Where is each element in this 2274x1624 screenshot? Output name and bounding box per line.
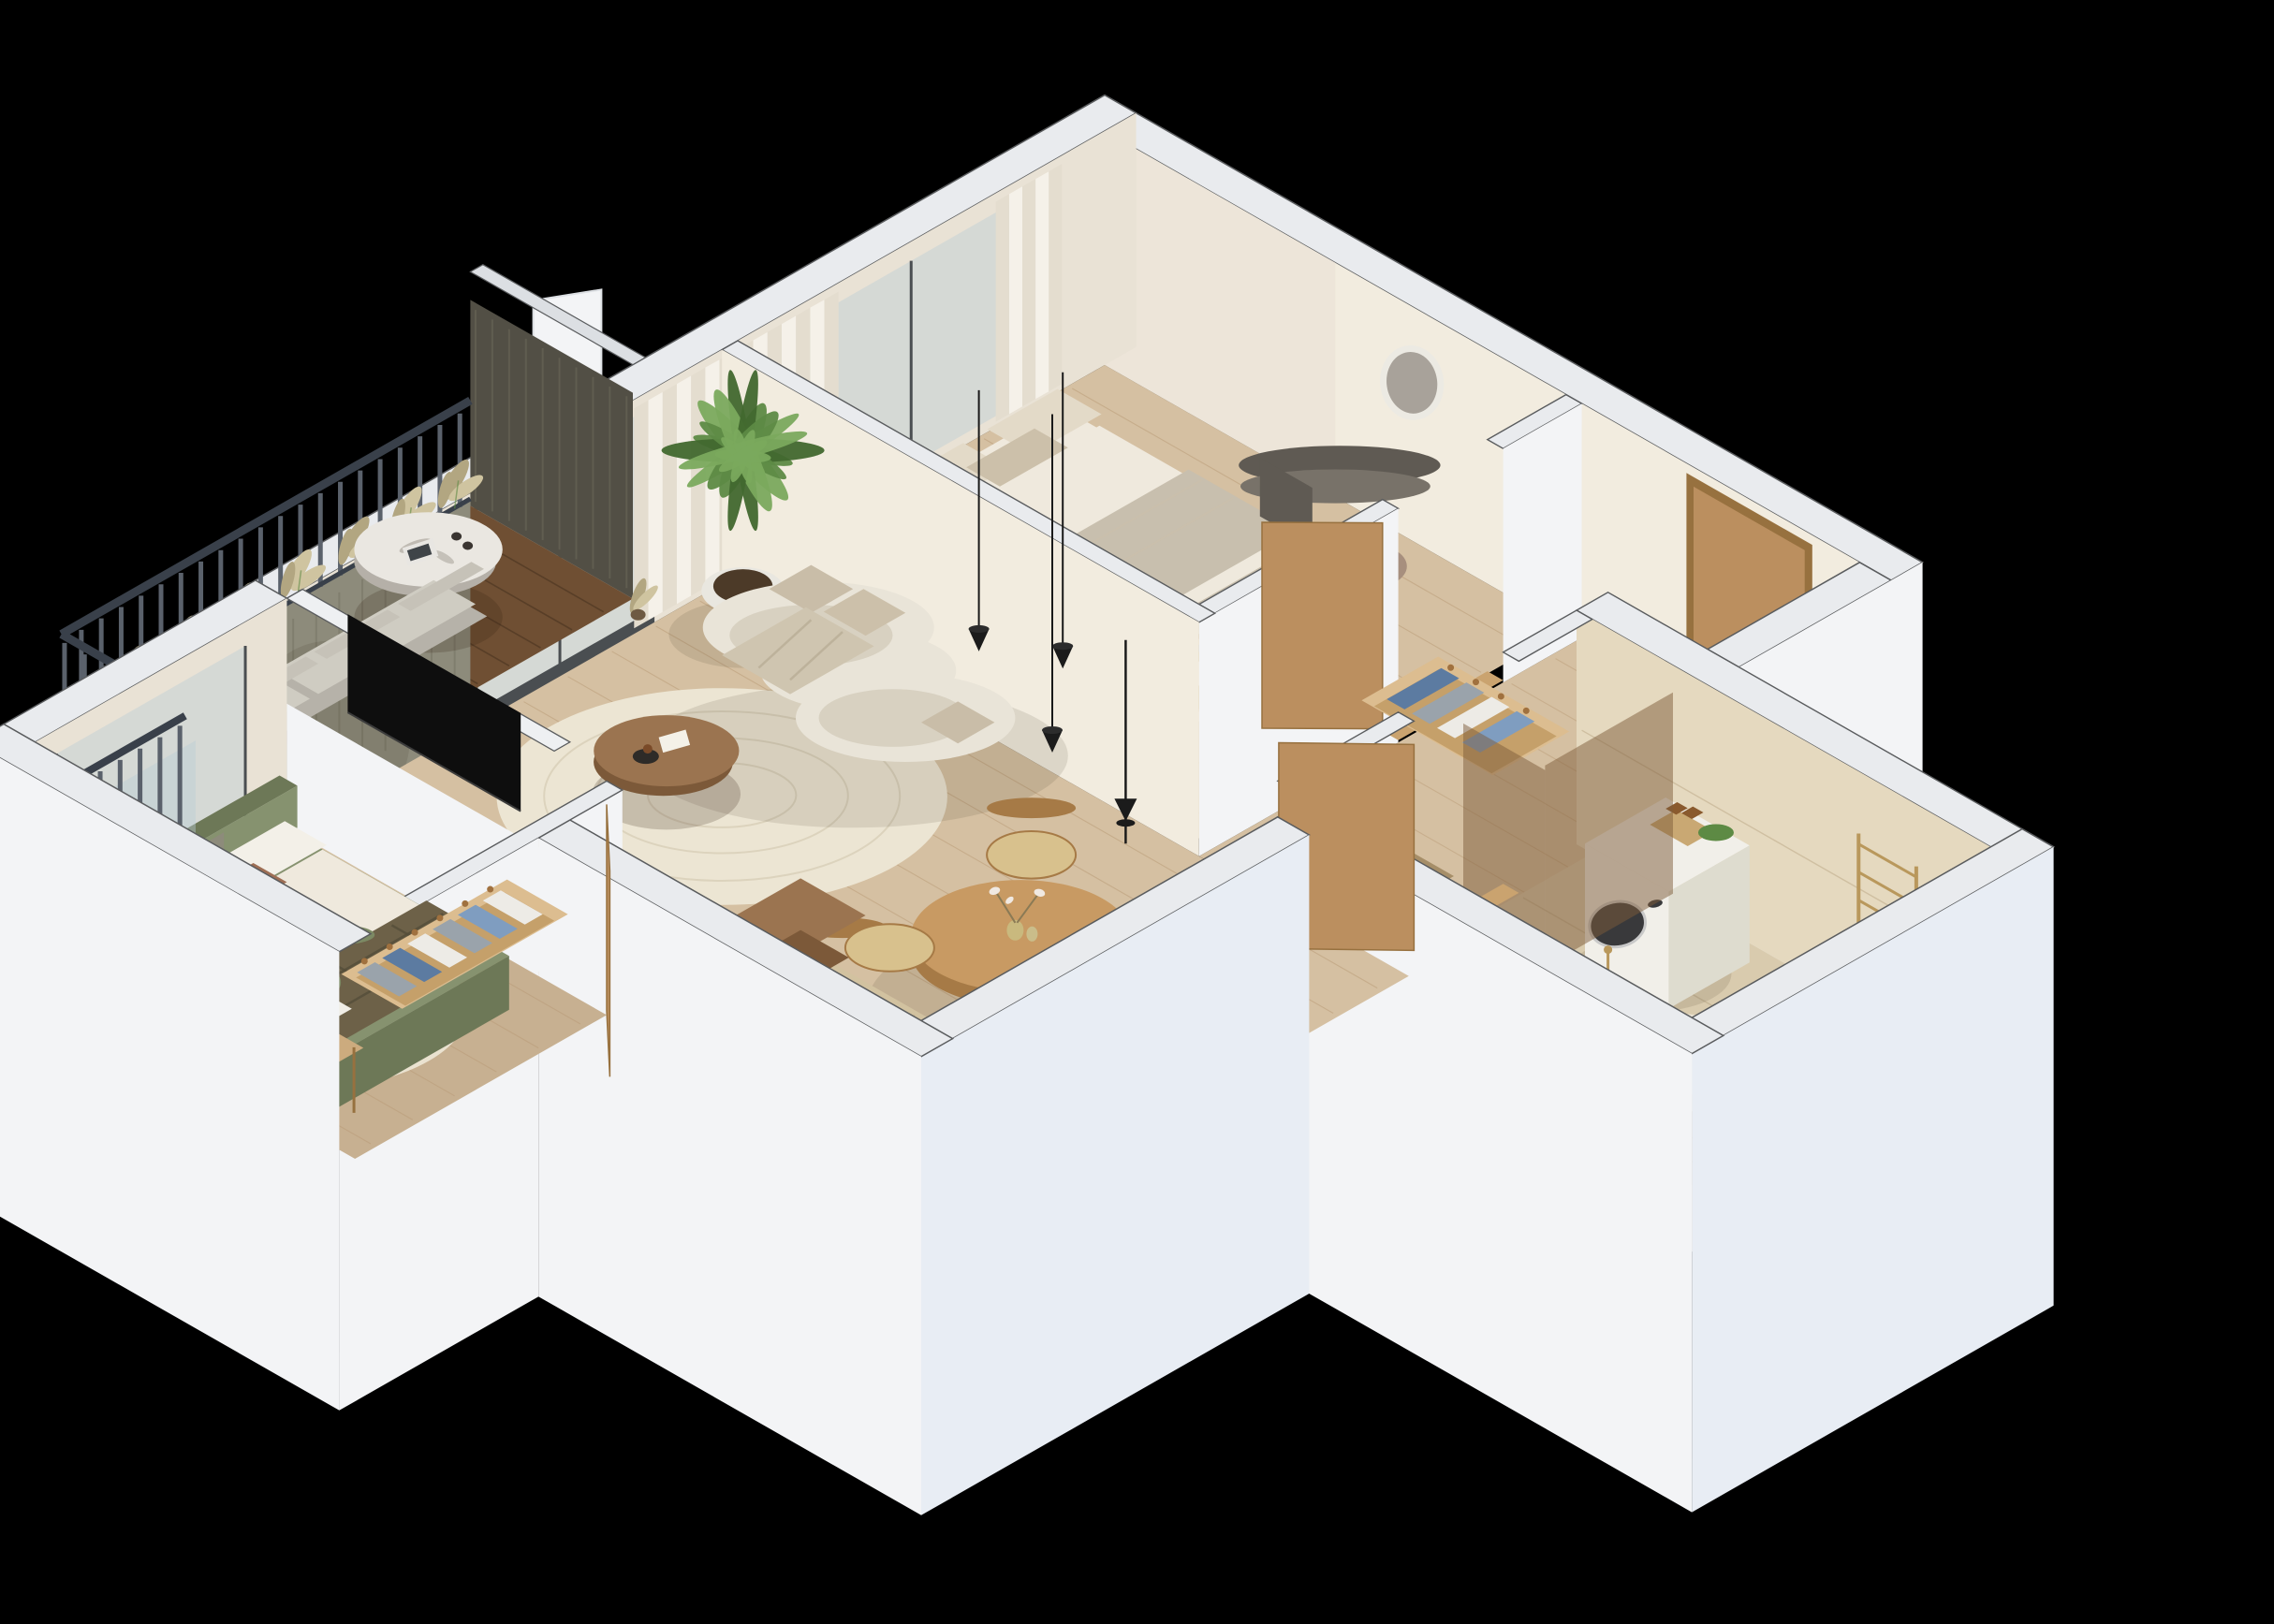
clothes-hanger-hook — [1447, 665, 1454, 671]
clothes-hanger-hook — [462, 900, 468, 907]
clothes-hanger-hook — [1523, 708, 1530, 714]
clothes-hanger-hook — [361, 958, 368, 964]
living-pampas-vase — [631, 609, 646, 621]
curtain-bedroom-left-pleat — [1009, 186, 1022, 414]
balcony-cup — [462, 542, 473, 550]
clothes-hanger-hook — [412, 929, 418, 936]
clothes-hanger-hook — [1498, 693, 1504, 699]
balcony-cup — [451, 533, 462, 541]
clothes-hanger-hook — [1473, 679, 1479, 685]
curtain-living-pleat — [677, 376, 691, 605]
coffee-table-decanter — [643, 744, 653, 753]
dining-vase-b — [1026, 927, 1037, 942]
pendant-cone-top — [1042, 726, 1063, 734]
render-stage — [0, 0, 2274, 1624]
washer-plant-sprig — [1698, 824, 1734, 841]
curtain-bedroom-left-pleat — [1022, 179, 1035, 406]
floorplan-3d-render — [0, 0, 2274, 1624]
curtain-bedroom-left-pleat — [1035, 171, 1049, 399]
dining-vase-a — [1006, 920, 1023, 941]
curtain-bedroom-left-pleat — [996, 194, 1009, 421]
pendant-cone-top — [969, 625, 990, 633]
pendant-cone-top — [1052, 642, 1073, 650]
curtain-bedroom-left-pleat — [1049, 164, 1062, 391]
curtain-living-pleat — [663, 384, 677, 612]
dining-chair-n-back — [987, 797, 1076, 818]
clothes-hanger-hook — [387, 944, 393, 950]
clothes-hanger-hook — [487, 886, 493, 893]
bedroom-door-open-leaf — [1262, 522, 1383, 729]
clothes-hanger-hook — [436, 914, 443, 921]
floor-lamp-base — [1116, 819, 1135, 827]
